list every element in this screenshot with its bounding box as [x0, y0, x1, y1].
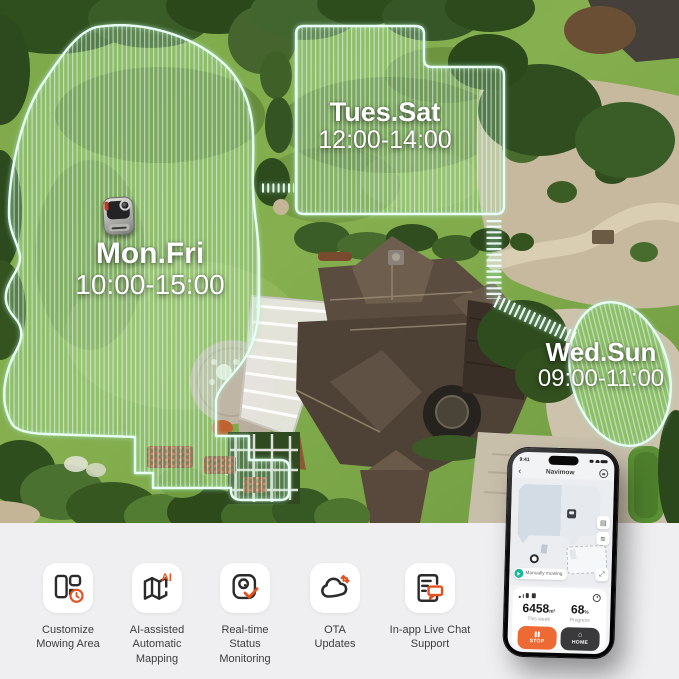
phone-mockup: 9:41 ‹ Navimow ▤ ≋: [503, 448, 619, 659]
map-list-button[interactable]: ≋: [596, 532, 609, 545]
aerial-photo: Mon.Fri 10:00-15:00 Tues.Sat 12:00-14:00…: [0, 0, 679, 523]
action-buttons-row: STOP ⌂ HOME: [517, 625, 600, 650]
app-screen: 9:41 ‹ Navimow ▤ ≋: [507, 452, 615, 655]
svg-text:AI: AI: [161, 572, 172, 584]
feature-customize-mowing-area: Customize Mowing Area: [22, 563, 114, 652]
progress-stat: 68% Progress: [559, 603, 601, 624]
app-title: Navimow: [546, 469, 575, 477]
status-play-icon: [514, 569, 523, 578]
home-button[interactable]: ⌂ HOME: [560, 627, 600, 651]
area-value: 6458: [522, 601, 549, 616]
chat-support-icon: [405, 563, 455, 613]
progress-value: 68: [571, 602, 585, 616]
feature-label: Real-time Status Monitoring: [211, 623, 279, 666]
schedule-timer-icon[interactable]: [593, 593, 601, 601]
app-map[interactable]: ▤ ≋ ⤢ Manually mowing: [509, 478, 614, 588]
stop-label: STOP: [530, 638, 545, 644]
feature-ota-updates: OTA Updates: [290, 563, 380, 652]
pause-icon: [535, 631, 540, 637]
robot-mower: [102, 196, 135, 236]
app-bottom-card: 6458m² This week 68% Progress STOP ⌂: [511, 587, 607, 651]
signal-icon: [590, 460, 594, 463]
area-unit: m²: [549, 609, 555, 615]
map-main-zone: [517, 484, 601, 550]
wifi-icon: [595, 460, 599, 463]
feature-chat-support: In-app Live Chat Support: [380, 563, 480, 652]
feature-status-monitoring: Real-time Status Monitoring: [200, 563, 290, 666]
message-icon[interactable]: [599, 469, 608, 478]
map-robot-marker: [567, 509, 576, 518]
fullscreen-icon: ⤢: [599, 571, 605, 579]
connectivity-icons: [519, 593, 536, 599]
status-chip-text: Manually mowing: [525, 571, 562, 577]
ota-updates-icon: [310, 563, 360, 613]
feature-label: OTA Updates: [309, 623, 361, 652]
product-infographic: Mon.Fri 10:00-15:00 Tues.Sat 12:00-14:00…: [0, 0, 679, 679]
signal-bars-icon: [522, 594, 524, 598]
aerial-photo-art: [0, 0, 679, 523]
feature-ai-mapping: AI AI-assisted Automatic Mapping: [114, 563, 200, 666]
layers-icon: ▤: [600, 519, 607, 527]
feature-label: AI-assisted Automatic Mapping: [125, 623, 189, 666]
robot-battery-icon: [532, 593, 536, 599]
area-stat: 6458m² This week: [518, 602, 560, 623]
map-layers-button[interactable]: ▤: [597, 516, 610, 529]
battery-icon: [601, 460, 608, 464]
progress-unit: %: [584, 610, 589, 616]
dynamic-island: [548, 456, 578, 466]
stats-row: 6458m² This week 68% Progress: [518, 602, 601, 624]
bluetooth-icon: [526, 593, 529, 598]
signal-bars-icon: [519, 596, 521, 599]
status-time: 9:41: [520, 456, 530, 462]
map-dock-marker: [530, 554, 539, 563]
map-fullscreen-button[interactable]: ⤢: [595, 568, 608, 581]
status-monitoring-icon: [220, 563, 270, 613]
progress-caption: Progress: [559, 616, 600, 623]
mowing-status-chip: Manually mowing: [513, 568, 567, 581]
home-label: HOME: [572, 639, 588, 645]
status-icons: [590, 460, 608, 464]
area-caption: This week: [518, 615, 559, 622]
feature-label: Customize Mowing Area: [28, 623, 108, 652]
feature-label: In-app Live Chat Support: [388, 623, 472, 652]
back-icon[interactable]: ‹: [518, 467, 521, 476]
map-zone-connector: [540, 544, 547, 554]
stop-button[interactable]: STOP: [517, 625, 557, 649]
list-icon: ≋: [600, 535, 606, 543]
robot-lamp: [104, 202, 108, 211]
ai-mapping-icon: AI: [132, 563, 182, 613]
customize-mowing-area-icon: [43, 563, 93, 613]
home-icon: ⌂: [578, 632, 582, 638]
